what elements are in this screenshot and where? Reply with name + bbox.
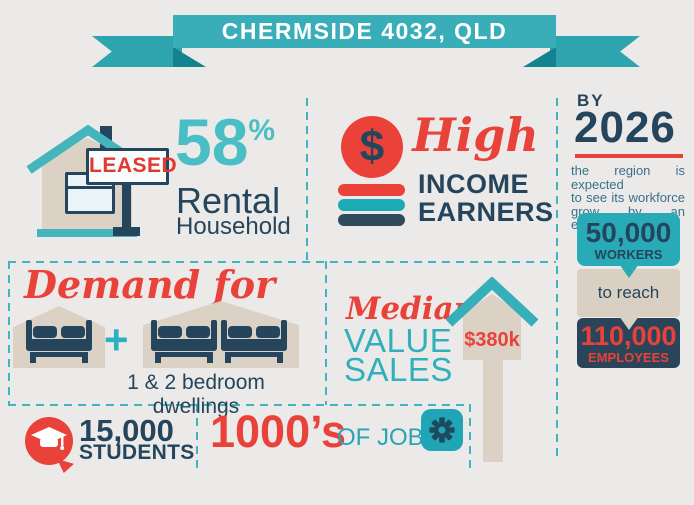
- bed-foot: [277, 356, 283, 363]
- percent-sign: %: [248, 114, 275, 148]
- divider-row2-vertical: [325, 261, 327, 405]
- dollar-coin-icon: $: [341, 116, 403, 178]
- jobs-value: 1000’s: [210, 406, 346, 458]
- rental-percentage: 58 %: [175, 108, 275, 177]
- divider-demand-left: [8, 261, 10, 405]
- bed-pillow: [186, 326, 210, 338]
- divider-row1-vertical: [306, 98, 308, 262]
- median-price: $380k: [455, 329, 529, 352]
- ribbon-tail-left: [92, 36, 182, 67]
- demand-title: Demand for: [24, 262, 275, 307]
- income-script-word: High: [408, 108, 543, 162]
- bed-icon: [151, 318, 217, 364]
- bed-pillow: [61, 326, 85, 338]
- plus-sign: +: [104, 316, 129, 364]
- employees-label: EMPLOYEES: [588, 351, 669, 364]
- forecast-underline: [575, 154, 683, 158]
- page-title: CHERMSIDE 4032, QLD: [173, 15, 556, 48]
- signpost-shaft: [483, 359, 503, 462]
- bed-foot: [207, 356, 213, 363]
- bed-icon: [221, 318, 287, 364]
- bed-base: [155, 352, 213, 357]
- income-word1: INCOME: [418, 169, 529, 200]
- bed-foot: [155, 356, 161, 363]
- sign-post-base: [113, 227, 140, 236]
- rental-percent-value: 58: [175, 108, 248, 177]
- ribbon-tail-right: [550, 36, 640, 67]
- ribbon-fold-left: [173, 47, 206, 67]
- bed-icon: [26, 318, 92, 364]
- income-word2: EARNERS: [418, 197, 554, 228]
- divider-right-column: [556, 98, 558, 460]
- median-word2: SALES: [344, 351, 453, 389]
- workers-badge: 50,000 WORKERS: [577, 213, 680, 266]
- bed-foot: [225, 356, 231, 363]
- coin-stack-bar-navy: [338, 214, 405, 226]
- coin-stack-bar-teal: [338, 199, 405, 211]
- bed-base: [225, 352, 283, 357]
- students-label: STUDENTS: [79, 441, 195, 465]
- coin-stack-bar-red: [338, 184, 405, 196]
- bed-mattress: [26, 339, 92, 351]
- bed-foot: [82, 356, 88, 363]
- leased-sign: LEASED: [86, 148, 169, 185]
- bed-mattress: [151, 339, 217, 351]
- bed-mattress: [221, 339, 287, 351]
- infographic-chermside: CHERMSIDE 4032, QLD LEASED 58 % Rental H…: [0, 0, 694, 505]
- workers-label: WORKERS: [595, 248, 663, 261]
- forecast-description-line: the region is expected: [571, 164, 685, 191]
- gear-icon: [428, 416, 456, 444]
- signpost-roof-icon: [444, 277, 540, 329]
- bed-foot: [30, 356, 36, 363]
- bed-pillow: [256, 326, 280, 338]
- graduation-cap-icon: [29, 425, 69, 457]
- workers-value: 50,000: [586, 218, 672, 248]
- rental-label-line2: Household: [176, 213, 291, 241]
- sign-post: [122, 183, 131, 230]
- forecast-description-line: to see its workforce: [571, 191, 685, 205]
- bed-pillow: [158, 326, 182, 338]
- graduation-bubble: [25, 417, 73, 465]
- divider-jobs-right: [469, 404, 471, 473]
- bed-pillow: [33, 326, 57, 338]
- forecast-year: 2026: [574, 103, 676, 153]
- window-divider: [68, 186, 112, 189]
- jobs-badge: [421, 409, 463, 451]
- bed-pillow: [228, 326, 252, 338]
- bed-base: [30, 352, 88, 357]
